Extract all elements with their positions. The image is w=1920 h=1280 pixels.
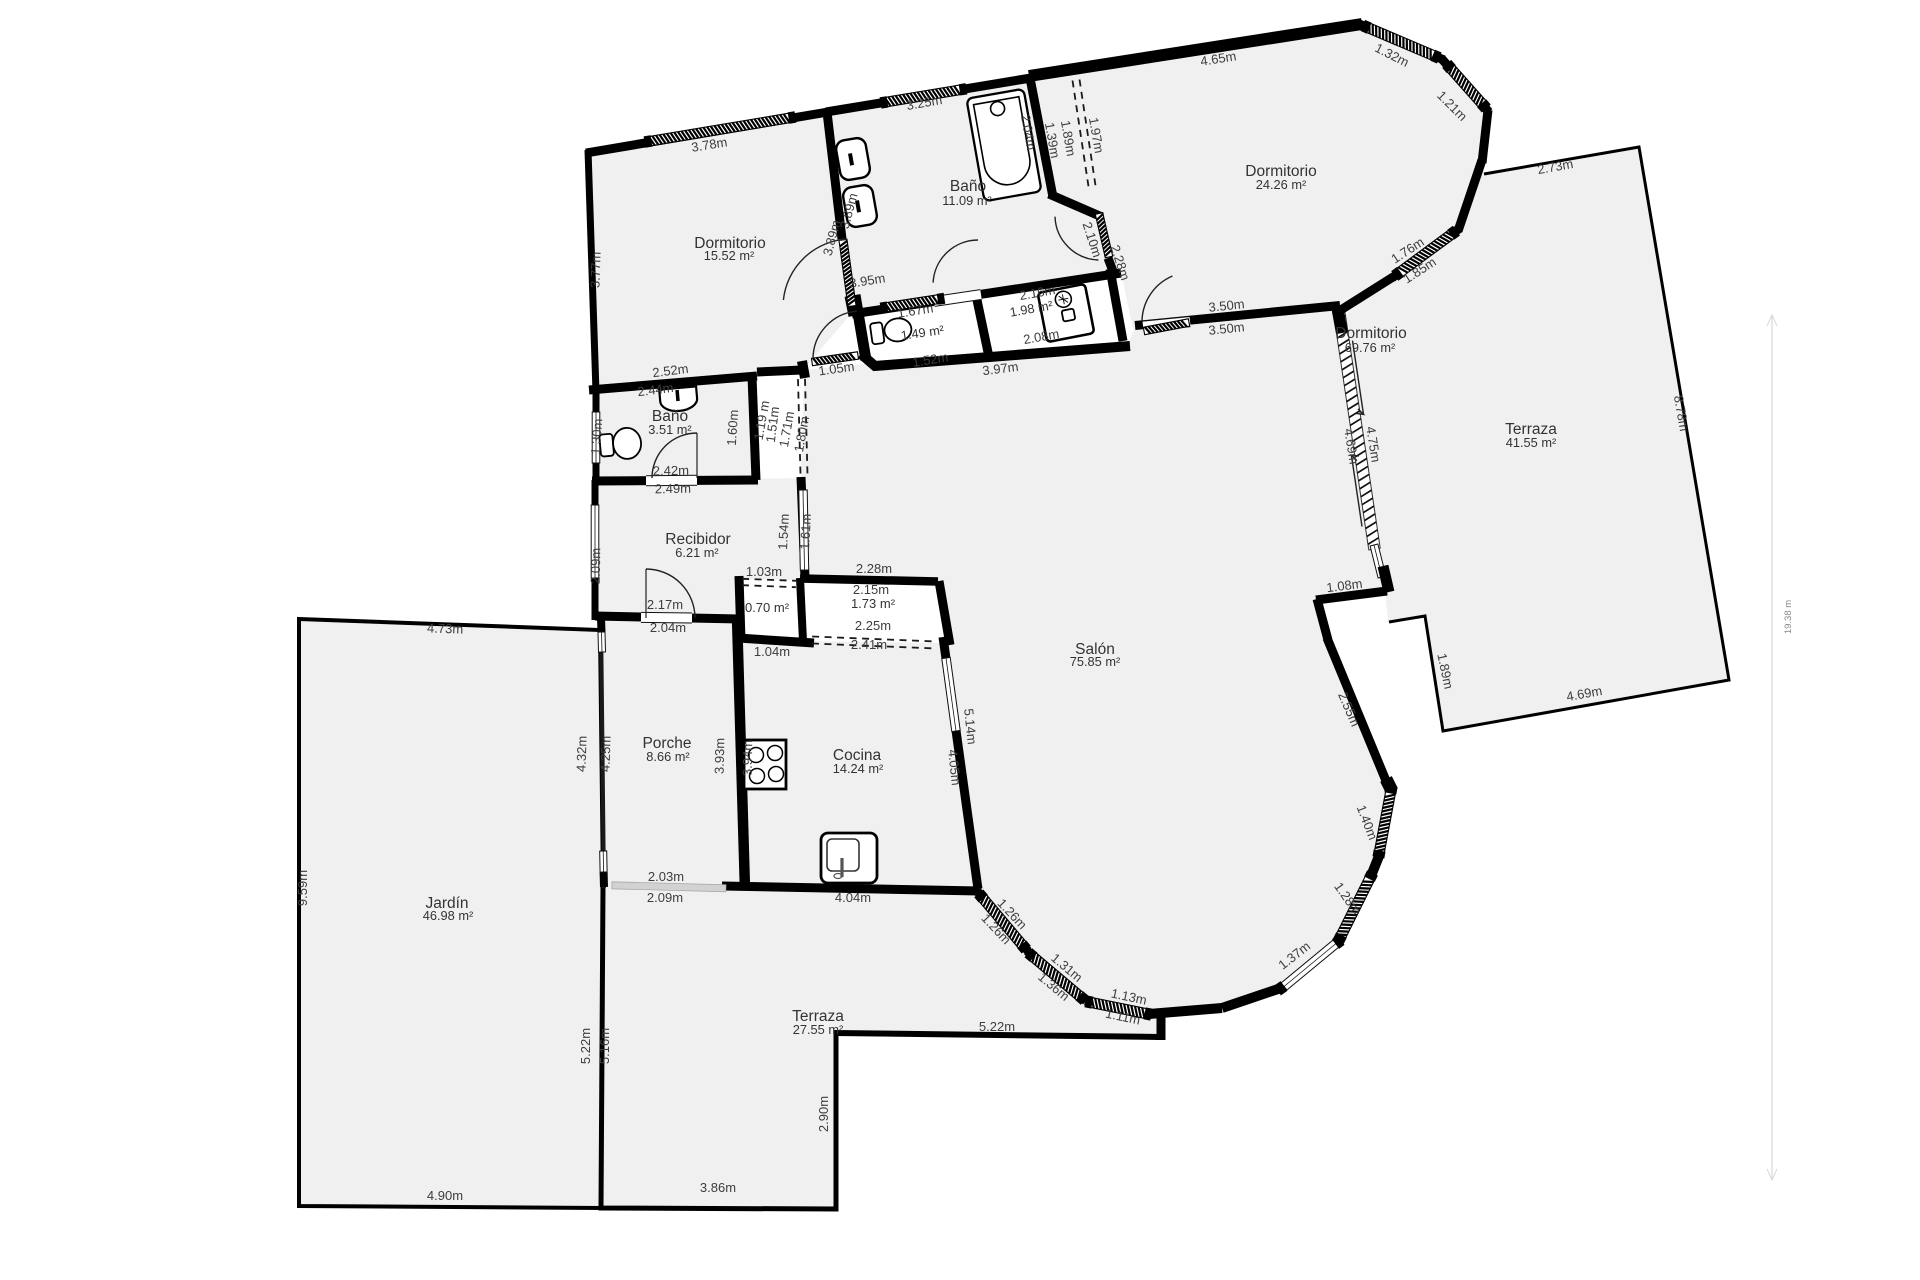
svg-text:8.66 m²: 8.66 m²	[646, 749, 690, 764]
svg-text:3.94m: 3.94m	[740, 740, 756, 776]
svg-text:2.04m: 2.04m	[650, 620, 686, 635]
svg-text:1.04m: 1.04m	[754, 644, 790, 659]
svg-text:5.22m: 5.22m	[578, 1028, 593, 1064]
svg-text:15.52 m²: 15.52 m²	[704, 248, 755, 263]
svg-text:1.73 m²: 1.73 m²	[851, 596, 896, 611]
svg-text:4.32m: 4.32m	[573, 736, 589, 773]
svg-text:5.16m: 5.16m	[597, 1028, 612, 1064]
svg-text:4.04m: 4.04m	[835, 890, 871, 905]
svg-text:3.93m: 3.93m	[712, 738, 728, 774]
svg-text:2.25m: 2.25m	[855, 618, 891, 633]
svg-text:24.26 m²: 24.26 m²	[1256, 177, 1307, 192]
svg-text:4.25m: 4.25m	[597, 736, 613, 773]
svg-text:1.30m: 1.30m	[588, 418, 605, 455]
svg-text:3.77m: 3.77m	[587, 252, 603, 289]
svg-text:2.41m: 2.41m	[851, 637, 887, 652]
svg-text:2.28m: 2.28m	[856, 561, 892, 576]
svg-text:5.22m: 5.22m	[979, 1019, 1015, 1034]
svg-text:1.61m: 1.61m	[797, 513, 814, 550]
svg-text:2.42m: 2.42m	[653, 463, 689, 479]
svg-text:41.55 m²: 41.55 m²	[1506, 435, 1557, 450]
svg-text:1.54m: 1.54m	[775, 513, 792, 550]
svg-text:3.51 m²: 3.51 m²	[648, 422, 692, 437]
svg-text:2.08m: 2.08m	[1022, 326, 1060, 347]
svg-text:69.76 m²: 69.76 m²	[1345, 340, 1396, 355]
svg-text:0.70 m²: 0.70 m²	[745, 600, 790, 615]
svg-text:6.21 m²: 6.21 m²	[675, 545, 719, 560]
svg-text:1.03m: 1.03m	[746, 564, 782, 579]
svg-text:2.49m: 2.49m	[655, 481, 691, 497]
svg-text:4.73m: 4.73m	[427, 620, 464, 636]
svg-text:4.90m: 4.90m	[427, 1188, 463, 1203]
svg-text:2.09m: 2.09m	[647, 890, 683, 905]
svg-text:75.85 m²: 75.85 m²	[1070, 654, 1121, 669]
svg-text:9.59m: 9.59m	[295, 870, 310, 906]
svg-text:11.09 m²: 11.09 m²	[942, 193, 992, 208]
svg-text:1.60m: 1.60m	[724, 409, 741, 446]
svg-text:46.98 m²: 46.98 m²	[423, 908, 474, 923]
svg-text:2.03m: 2.03m	[648, 869, 684, 884]
svg-text:2.09m: 2.09m	[588, 548, 604, 584]
svg-text:2.17m: 2.17m	[647, 597, 683, 612]
svg-text:2.90m: 2.90m	[816, 1096, 831, 1132]
svg-text:27.55 m²: 27.55 m²	[793, 1022, 844, 1037]
svg-text:3.86m: 3.86m	[700, 1180, 736, 1195]
svg-text:19.38 m: 19.38 m	[1783, 600, 1794, 634]
svg-text:14.24 m²: 14.24 m²	[833, 761, 884, 776]
svg-text:2.15m: 2.15m	[853, 582, 889, 597]
